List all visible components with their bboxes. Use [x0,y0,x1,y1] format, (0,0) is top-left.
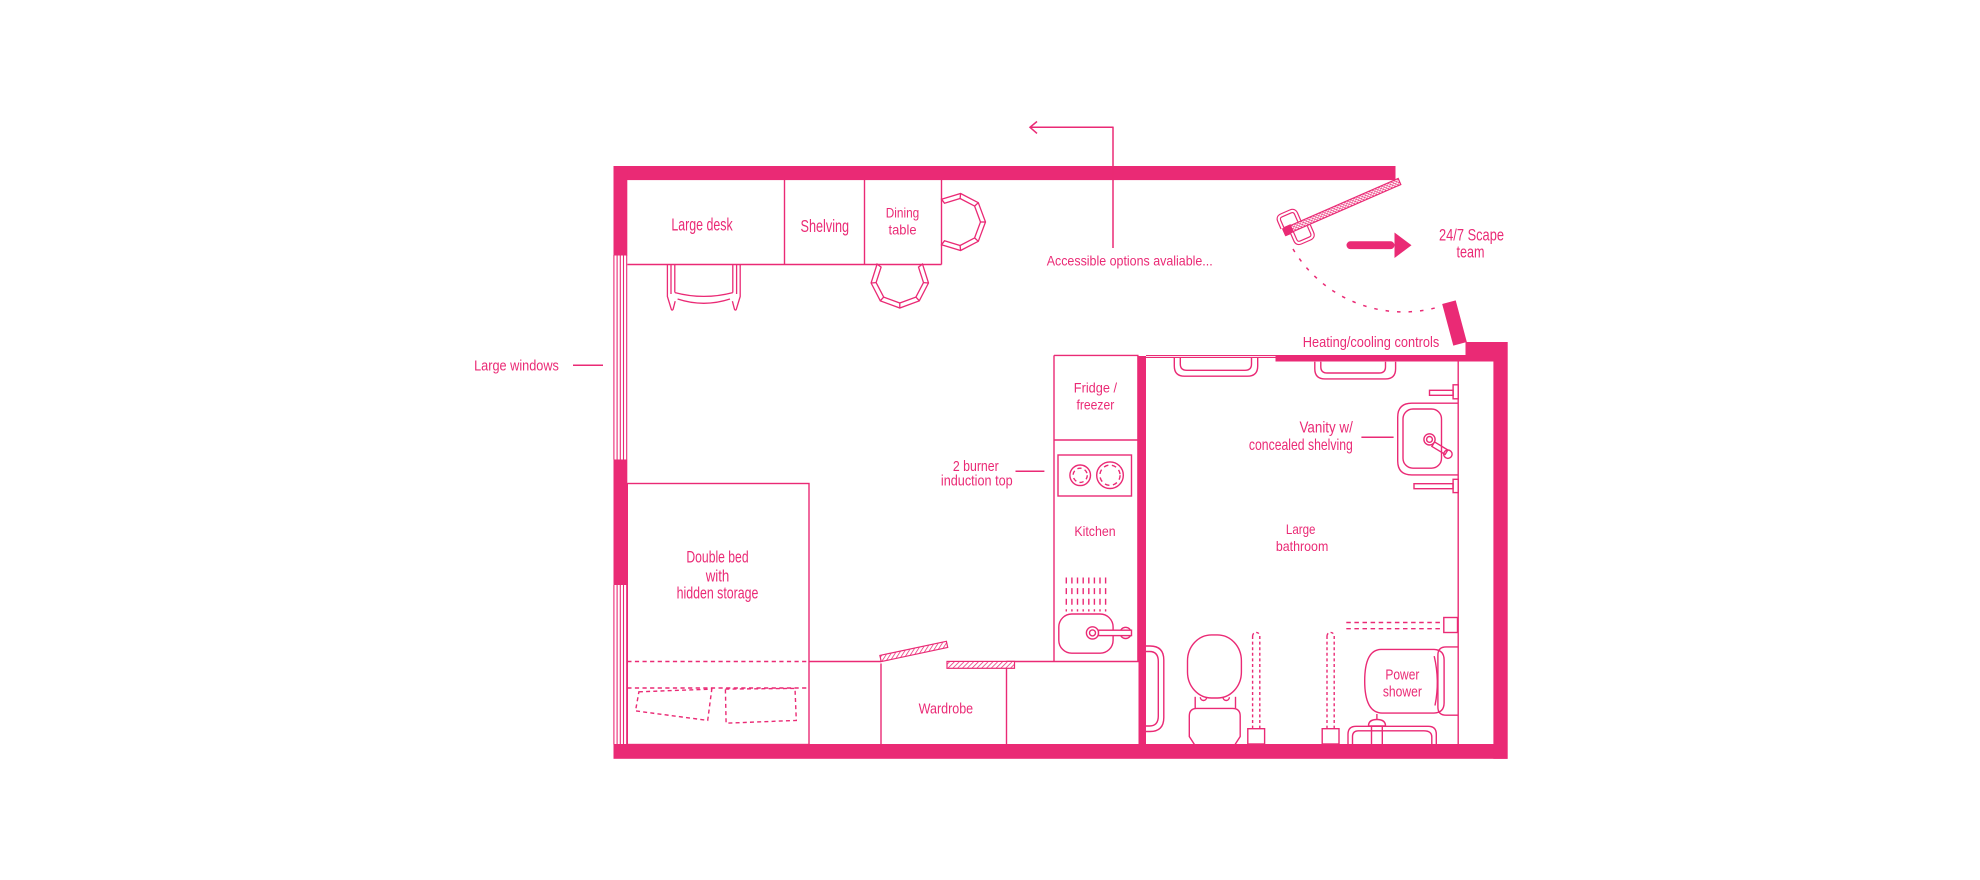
svg-text:Double bed: Double bed [686,548,748,567]
svg-text:team: team [1457,242,1485,261]
svg-text:Fridge /: Fridge / [1074,381,1117,396]
svg-text:Accessible options avaliable..: Accessible options avaliable... [1047,254,1213,269]
svg-text:bathroom: bathroom [1276,539,1328,554]
svg-text:freezer: freezer [1077,398,1115,413]
svg-text:Dining: Dining [886,205,920,220]
svg-text:Large windows: Large windows [474,358,559,375]
svg-text:Shelving: Shelving [801,216,850,236]
svg-text:Kitchen: Kitchen [1074,523,1115,539]
svg-text:Vanity w/: Vanity w/ [1300,419,1354,436]
svg-text:concealed shelving: concealed shelving [1249,437,1353,454]
svg-text:Wardrobe: Wardrobe [919,702,974,718]
svg-text:induction top: induction top [941,474,1013,490]
svg-text:Heating/cooling controls: Heating/cooling controls [1303,335,1440,351]
svg-text:table: table [889,223,917,238]
svg-text:Large desk: Large desk [671,215,732,235]
svg-text:hidden storage: hidden storage [677,584,759,603]
svg-text:Large: Large [1286,522,1316,537]
svg-text:with: with [705,566,729,585]
svg-text:shower: shower [1383,684,1422,700]
svg-text:Power: Power [1385,668,1419,684]
